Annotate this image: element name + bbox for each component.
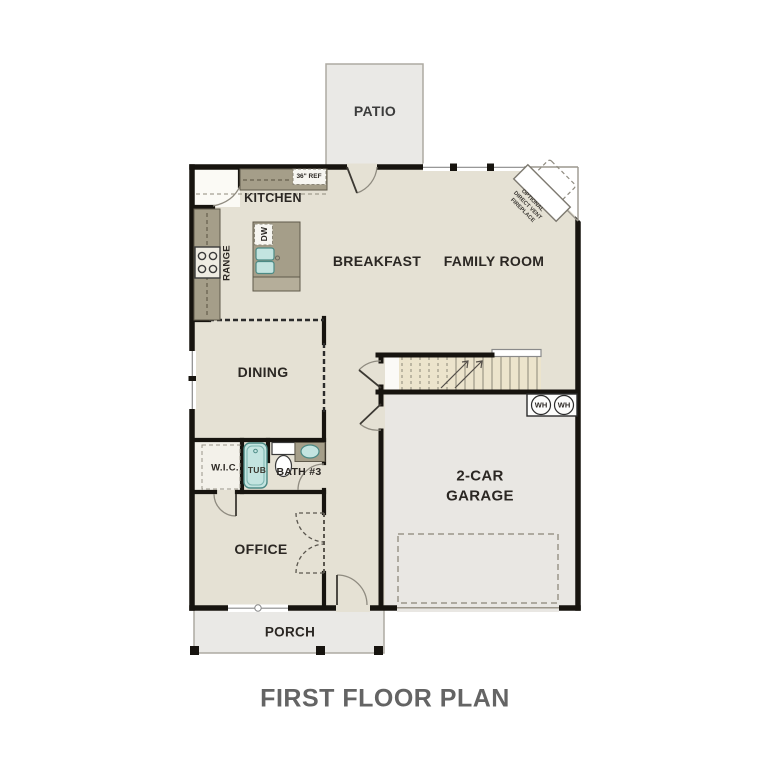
range-label: RANGE <box>222 245 232 281</box>
family-room-label: FAMILY ROOM <box>444 254 545 268</box>
dining-label: DINING <box>238 365 289 379</box>
breakfast-label: BREAKFAST <box>333 254 421 268</box>
tub-label: TUB <box>248 466 266 475</box>
garage-label: 2-CAR GARAGE <box>437 467 523 506</box>
wic-label: W.I.C. <box>211 463 239 473</box>
patio-label: PATIO <box>354 104 396 118</box>
office-label: OFFICE <box>234 542 287 556</box>
water-heater-2-label: WH <box>558 401 571 409</box>
refrigerator-label: 36" REF <box>296 173 321 180</box>
bath-vanity <box>295 443 325 462</box>
plan-title: FIRST FLOOR PLAN <box>260 687 510 712</box>
bath3-label: BATH #3 <box>276 467 321 478</box>
kitchen-label: KITCHEN <box>244 192 302 205</box>
dishwasher-label: DW <box>259 227 268 242</box>
vanity-sink <box>301 445 319 458</box>
porch-label: PORCH <box>265 625 315 639</box>
floor-plan-canvas: PATIO KITCHEN 36" REF RANGE DW BREAKFAST… <box>0 0 768 768</box>
water-heater-1-label: WH <box>535 401 548 409</box>
range-burners <box>195 247 220 278</box>
